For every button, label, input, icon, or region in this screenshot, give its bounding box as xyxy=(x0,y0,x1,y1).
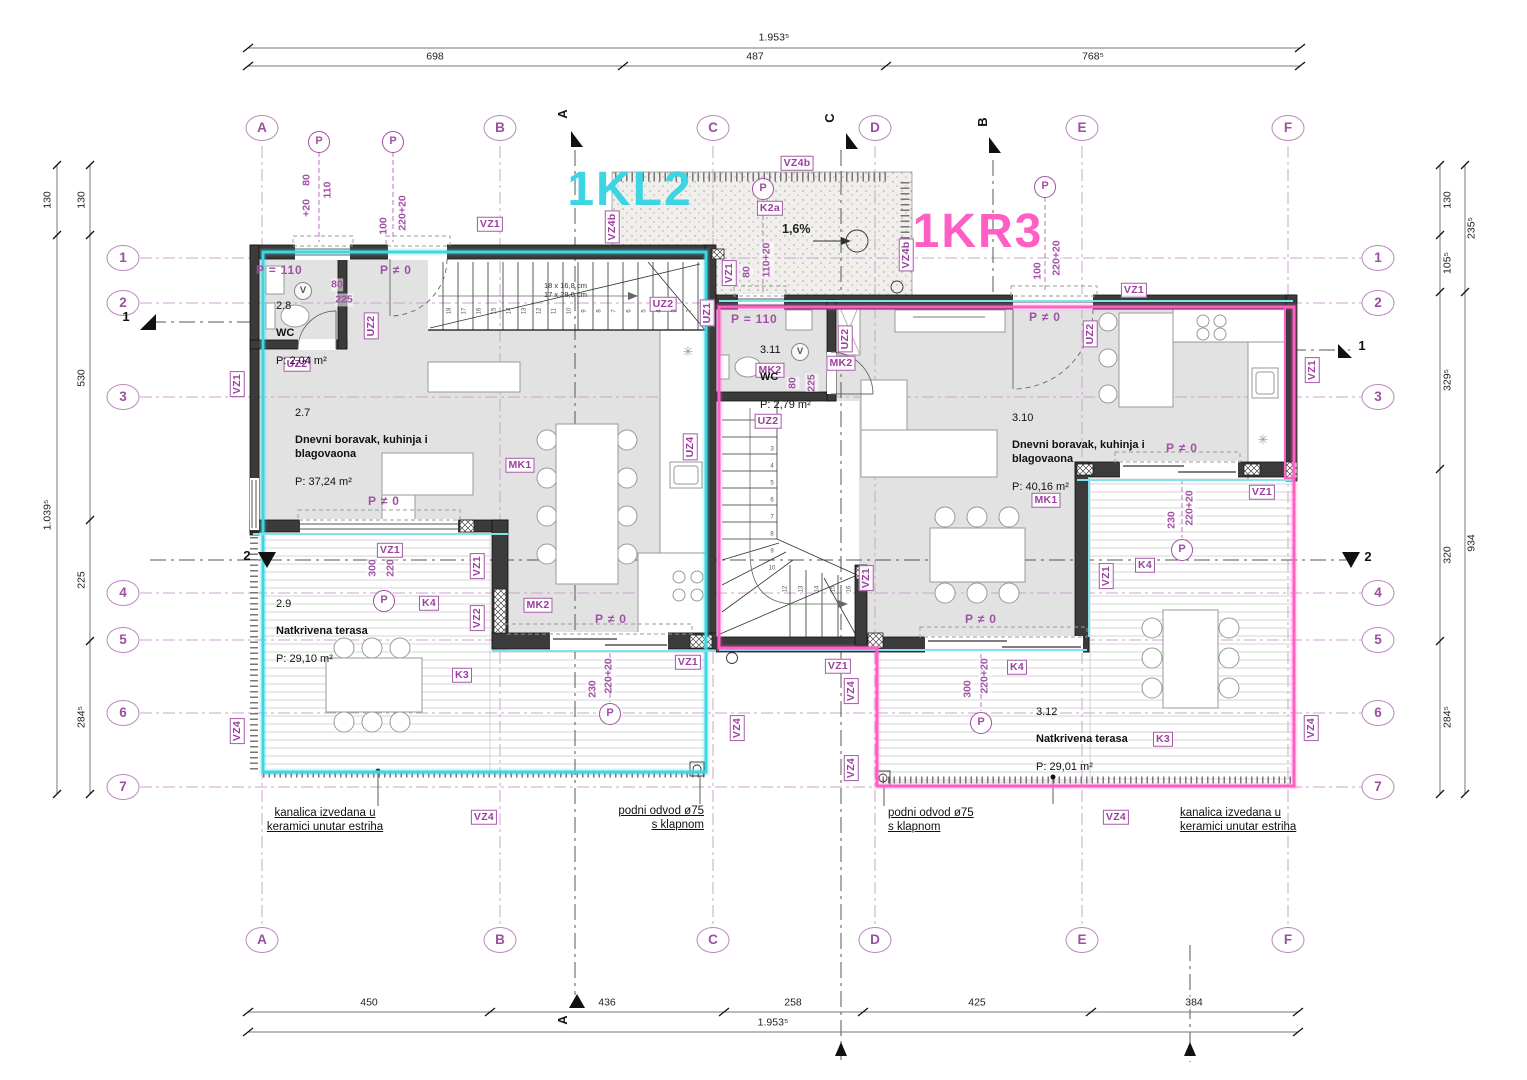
grid-bubble: C xyxy=(697,115,730,141)
dim-label: 80 xyxy=(331,278,343,291)
element-tag: VZ4b xyxy=(899,239,914,272)
room-area: P: 29,01 m² xyxy=(1036,761,1128,775)
stair-tread-number: 9 xyxy=(581,309,589,312)
element-tag: VZ1 xyxy=(230,371,245,397)
element-tag: UZ4 xyxy=(683,434,698,461)
grid-bubble: 1 xyxy=(107,245,140,271)
floor-plan-linework xyxy=(0,0,1527,1080)
room-name: WC xyxy=(276,327,327,341)
stair-tread-number: 5 xyxy=(641,309,649,312)
room-area: P: 2,79 m² xyxy=(760,399,811,413)
stair-tread-number: 12 xyxy=(782,586,790,593)
grid-bubble: 1 xyxy=(1362,245,1395,271)
stair-tread-number: 3 xyxy=(671,309,679,312)
stair-tread-number: 18 xyxy=(446,308,454,315)
dimension-text: 105⁵ xyxy=(1441,251,1454,275)
grid-bubble: E xyxy=(1066,927,1099,953)
grid-bubble: B xyxy=(484,927,517,953)
grid-bubble: 6 xyxy=(1362,700,1395,726)
dim-label: 220 xyxy=(384,559,397,577)
circle-marker: P xyxy=(373,590,395,612)
stair-tread-number: 17 xyxy=(461,308,469,315)
room-label: 3.12 Natkrivena terasa P: 29,01 m² xyxy=(1036,692,1128,788)
grid-bubble: 3 xyxy=(1362,384,1395,410)
unit-label-1KL2: 1KL2 xyxy=(567,160,692,220)
parapet-note: P ≠ 0 xyxy=(380,263,412,278)
dim-label: 110 xyxy=(321,182,334,199)
annotation: podni odvod ø75 s klapnom xyxy=(618,804,704,833)
dim-label: 300 xyxy=(366,559,379,577)
grid-bubble: 2 xyxy=(1362,290,1395,316)
section-marker: 1 xyxy=(122,309,129,325)
dim-label: 220+20 xyxy=(396,195,409,230)
room-name: WC xyxy=(760,371,811,385)
room-area: P: 40,16 m² xyxy=(1012,481,1162,495)
room-number: 3.10 xyxy=(1012,412,1162,426)
circle-marker: V xyxy=(791,343,809,361)
dimension-text: 284⁵ xyxy=(75,705,88,729)
grid-bubble: 4 xyxy=(107,580,140,606)
grid-bubble: 5 xyxy=(1362,627,1395,653)
element-tag: VZ1 xyxy=(825,659,851,674)
grid-bubble: A xyxy=(246,927,279,953)
dim-label: 230 xyxy=(1165,511,1178,529)
room-number: 2.9 xyxy=(276,598,368,612)
circle-marker: V xyxy=(294,282,312,300)
stair-tread-number: 14 xyxy=(814,586,822,593)
grid-bubble: B xyxy=(484,115,517,141)
room-area: P: 29,10 m² xyxy=(276,653,368,667)
annotation: 18 x 16,8 cm 17 x 28,0 cm xyxy=(544,281,587,299)
grid-bubble: 3 xyxy=(107,384,140,410)
dim-label: 220+20 xyxy=(1183,490,1196,525)
stair-tread-number: 2 xyxy=(686,309,694,312)
element-tag: K4 xyxy=(1007,660,1027,675)
parapet-note: P ≠ 0 xyxy=(965,612,997,627)
dimension-text: 130 xyxy=(41,190,54,210)
room-number: 2.7 xyxy=(295,407,445,421)
element-tag: VZ1 xyxy=(1121,283,1147,298)
dim-label: 220+20 xyxy=(602,658,615,693)
element-tag: K2a xyxy=(757,201,783,216)
appliance-snowflake-icon: ✳ xyxy=(1258,432,1269,448)
section-marker: A xyxy=(555,1015,571,1024)
dimension-text: 130 xyxy=(75,190,88,210)
grid-bubble: F xyxy=(1272,115,1305,141)
dim-label: 110+20 xyxy=(760,243,773,278)
parapet-note: P ≠ 0 xyxy=(595,612,627,627)
stair-tread-number: 4 xyxy=(770,463,773,471)
element-tag: VZ1 xyxy=(722,260,737,286)
dimension-text: 284⁵ xyxy=(1441,705,1454,729)
dim-label: +20 xyxy=(300,199,313,217)
room-area: P: 2,04 m² xyxy=(276,355,327,369)
element-tag: VZ1 xyxy=(1305,357,1320,383)
room-number: 3.12 xyxy=(1036,706,1128,720)
element-tag: UZ2 xyxy=(838,326,853,353)
section-marker: 1 xyxy=(1358,338,1365,354)
grid-bubble: A xyxy=(246,115,279,141)
element-tag: VZ4 xyxy=(844,755,859,781)
dimension-text: 530 xyxy=(75,368,88,388)
parapet-note: P = 110 xyxy=(731,312,777,327)
circle-marker: P xyxy=(752,178,774,200)
stair-tread-number: 15 xyxy=(830,586,838,593)
grid-bubble: D xyxy=(859,115,892,141)
stair-tread-number: 7 xyxy=(770,514,773,522)
stair-tread-number: 13 xyxy=(798,586,806,593)
dim-label: 80 xyxy=(300,174,313,186)
grid-bubble: C xyxy=(697,927,730,953)
unit-label-1KR3: 1KR3 xyxy=(913,202,1044,262)
stair-tread-number: 10 xyxy=(566,308,574,315)
dimension-text: 436 xyxy=(597,996,617,1009)
room-label: 2.7 Dnevni boravak, kuhinja i blagovaona… xyxy=(295,393,445,503)
element-tag: UZ1 xyxy=(700,300,715,327)
grid-bubble: 4 xyxy=(1362,580,1395,606)
section-marker: C xyxy=(822,113,838,122)
stair-tread-number: 15 xyxy=(491,308,499,315)
annotation: kanalica izvedana u keramici unutar estr… xyxy=(1180,806,1296,835)
element-tag: MK1 xyxy=(505,458,534,473)
appliance-snowflake-icon: ✳ xyxy=(683,344,694,360)
element-tag: VZ1 xyxy=(675,655,701,670)
element-tag: K3 xyxy=(452,668,472,683)
stair-tread-number: 9 xyxy=(770,548,773,556)
element-tag: VZ4 xyxy=(730,715,745,741)
parapet-note: P = 110 xyxy=(256,263,302,278)
section-marker: A xyxy=(555,109,571,118)
stair-tread-number: 11 xyxy=(551,308,559,314)
element-tag: VZ1 xyxy=(470,553,485,579)
annotation: 1,6% xyxy=(782,222,811,238)
element-tag: VZ1 xyxy=(1099,563,1114,589)
grid-bubble: 6 xyxy=(107,700,140,726)
element-tag: K3 xyxy=(1153,732,1173,747)
room-name: Dnevni boravak, kuhinja i blagovaona xyxy=(295,434,445,462)
section-marker: B xyxy=(975,117,991,126)
dim-label: 300 xyxy=(961,680,974,698)
stair-tread-number: 16 xyxy=(846,586,854,593)
stair-tread-number: 16 xyxy=(476,308,484,315)
circle-marker: P xyxy=(970,712,992,734)
dimension-text: 384 xyxy=(1184,996,1204,1009)
circle-marker: P xyxy=(1034,176,1056,198)
grid-bubble: 7 xyxy=(1362,774,1395,800)
stair-tread-number: 4 xyxy=(656,309,664,312)
dim-label: 220+20 xyxy=(978,658,991,693)
stair-tread-number: 13 xyxy=(521,308,529,315)
element-tag: MK2 xyxy=(826,356,855,371)
grid-bubble: 5 xyxy=(107,627,140,653)
dim-label: 80 xyxy=(740,266,753,278)
dim-label: 220+20 xyxy=(1050,240,1063,275)
dim-label: 100 xyxy=(1031,262,1044,280)
element-tag: VZ4 xyxy=(1103,810,1129,825)
stair-tread-number: 8 xyxy=(770,531,773,539)
dimension-text: 320 xyxy=(1441,545,1454,565)
room-label: 2.8 WC P: 2,04 m² xyxy=(276,286,327,382)
element-tag: VZ4b xyxy=(781,156,814,171)
element-tag: VZ1 xyxy=(377,543,403,558)
circle-marker: P xyxy=(1171,539,1193,561)
dimension-text: 698 xyxy=(425,50,445,63)
element-tag: VZ4 xyxy=(844,678,859,704)
stair-tread-number: 6 xyxy=(770,497,773,505)
element-tag: VZ1 xyxy=(859,565,874,591)
floor-plan: ABCDEFABCDEF12345671234567 1.953⁵6984877… xyxy=(0,0,1527,1080)
parapet-note: P ≠ 0 xyxy=(1166,441,1198,456)
stair-tread-number: 6 xyxy=(626,309,634,312)
grid-bubble: D xyxy=(859,927,892,953)
element-tag: VZ4 xyxy=(471,810,497,825)
element-tag: VZ4 xyxy=(1304,715,1319,741)
room-number: 2.8 xyxy=(276,300,327,314)
grid-bubble: E xyxy=(1066,115,1099,141)
dimension-text: 768⁵ xyxy=(1081,50,1105,63)
circle-marker: P xyxy=(599,703,621,725)
circle-marker: P xyxy=(308,131,330,153)
circle-marker: P xyxy=(382,131,404,153)
stair-tread-number: 8 xyxy=(596,309,604,312)
element-tag: K4 xyxy=(1135,558,1155,573)
dimension-text: 425 xyxy=(967,996,987,1009)
element-tag: VZ2 xyxy=(470,605,485,631)
parapet-note: P ≠ 0 xyxy=(1029,310,1061,325)
section-marker: 2 xyxy=(243,548,250,564)
dim-label: 100 xyxy=(377,217,390,235)
room-label: 3.10 Dnevni boravak, kuhinja i blagovaon… xyxy=(1012,398,1162,508)
dimension-text: 934 xyxy=(1465,533,1478,553)
dimension-text: 130 xyxy=(1441,190,1454,210)
room-label: 2.9 Natkrivena terasa P: 29,10 m² xyxy=(276,584,368,680)
element-tag: VZ1 xyxy=(477,217,503,232)
element-tag: VZ4 xyxy=(230,718,245,744)
stair-tread-number: 12 xyxy=(536,308,544,315)
dimension-text: 235⁵ xyxy=(1465,216,1478,240)
dim-label: 225 xyxy=(335,293,353,306)
element-tag: UZ2 xyxy=(364,313,379,340)
dimension-text: 487 xyxy=(745,50,765,63)
room-area: P: 37,24 m² xyxy=(295,476,445,490)
dimension-text: 450 xyxy=(359,996,379,1009)
grid-bubble: F xyxy=(1272,927,1305,953)
room-name: Natkrivena terasa xyxy=(1036,733,1128,747)
dimension-text: 225 xyxy=(75,570,88,590)
stair-tread-number: 5 xyxy=(770,480,773,488)
stair-tread-number: 3 xyxy=(770,446,773,454)
dimension-text: 1.953⁵ xyxy=(758,31,791,44)
section-marker: 2 xyxy=(1364,549,1371,565)
stair-tread-number: 7 xyxy=(611,309,619,312)
element-tag: K4 xyxy=(419,596,439,611)
dimension-text: 329⁵ xyxy=(1441,368,1454,392)
dimension-text: 258 xyxy=(783,996,803,1009)
stair-tread-number: 14 xyxy=(506,308,514,315)
annotation: podni odvod ø75 s klapnom xyxy=(888,806,974,835)
grid-bubble: 7 xyxy=(107,774,140,800)
element-tag: MK2 xyxy=(523,598,552,613)
room-name: Dnevni boravak, kuhinja i blagovaona xyxy=(1012,439,1162,467)
dimension-text: 1.953⁵ xyxy=(757,1016,790,1029)
dimension-text: 1.039⁵ xyxy=(41,499,54,532)
element-tag: UZ2 xyxy=(1083,321,1098,348)
element-tag: VZ1 xyxy=(1249,485,1275,500)
stair-tread-number: 10 xyxy=(769,565,776,573)
annotation: kanalica izvedana u keramici unutar estr… xyxy=(267,806,383,835)
room-name: Natkrivena terasa xyxy=(276,625,368,639)
dim-label: 230 xyxy=(586,680,599,698)
